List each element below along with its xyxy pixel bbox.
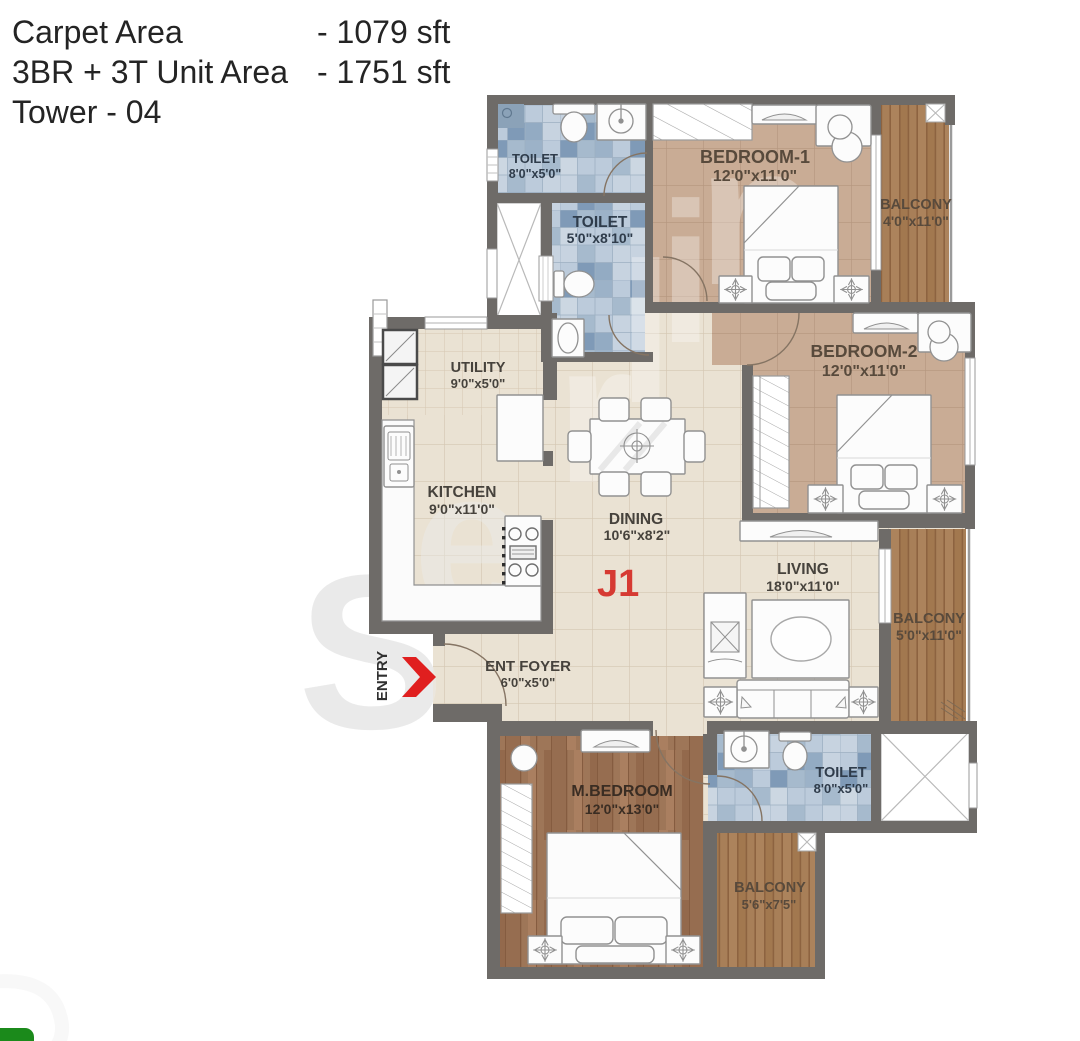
svg-text:BALCONY: BALCONY [893, 611, 965, 627]
svg-text:ENTRY: ENTRY [374, 651, 391, 701]
svg-text:12'0"x11'0": 12'0"x11'0" [713, 168, 797, 185]
svg-text:KITCHEN: KITCHEN [428, 484, 497, 501]
svg-text:M.BEDROOM: M.BEDROOM [571, 783, 672, 800]
svg-text:BALCONY: BALCONY [734, 880, 806, 896]
svg-text:12'0"x13'0": 12'0"x13'0" [585, 801, 659, 817]
svg-text:6'0"x5'0": 6'0"x5'0" [501, 675, 556, 690]
svg-text:8'0"x5'0": 8'0"x5'0" [509, 167, 562, 181]
svg-text:DINING: DINING [609, 511, 663, 528]
svg-text:TOILET: TOILET [573, 214, 628, 231]
svg-text:9'0"x5'0": 9'0"x5'0" [451, 376, 506, 391]
svg-text:12'0"x11'0": 12'0"x11'0" [822, 363, 906, 380]
svg-text:TOILET: TOILET [815, 765, 866, 781]
svg-text:5'0"x11'0": 5'0"x11'0" [896, 627, 962, 643]
svg-text:8'0"x5'0": 8'0"x5'0" [814, 781, 869, 796]
svg-text:10'6"x8'2": 10'6"x8'2" [604, 527, 671, 543]
svg-text:9'0"x11'0": 9'0"x11'0" [429, 501, 495, 517]
svg-text:BEDROOM-2: BEDROOM-2 [811, 341, 918, 361]
svg-text:5'0"x8'10": 5'0"x8'10" [567, 230, 634, 246]
svg-text:18'0"x11'0": 18'0"x11'0" [766, 578, 840, 594]
svg-text:LIVING: LIVING [777, 561, 829, 578]
svg-text:ENT FOYER: ENT FOYER [485, 658, 571, 675]
svg-text:J1: J1 [597, 563, 639, 605]
svg-text:BEDROOM-1: BEDROOM-1 [700, 147, 810, 167]
svg-text:UTILITY: UTILITY [451, 360, 506, 376]
svg-text:BALCONY: BALCONY [880, 197, 952, 213]
svg-text:4'0"x11'0": 4'0"x11'0" [883, 213, 949, 229]
svg-text:TOILET: TOILET [512, 151, 558, 166]
svg-text:5'6"x7'5": 5'6"x7'5" [742, 897, 797, 912]
